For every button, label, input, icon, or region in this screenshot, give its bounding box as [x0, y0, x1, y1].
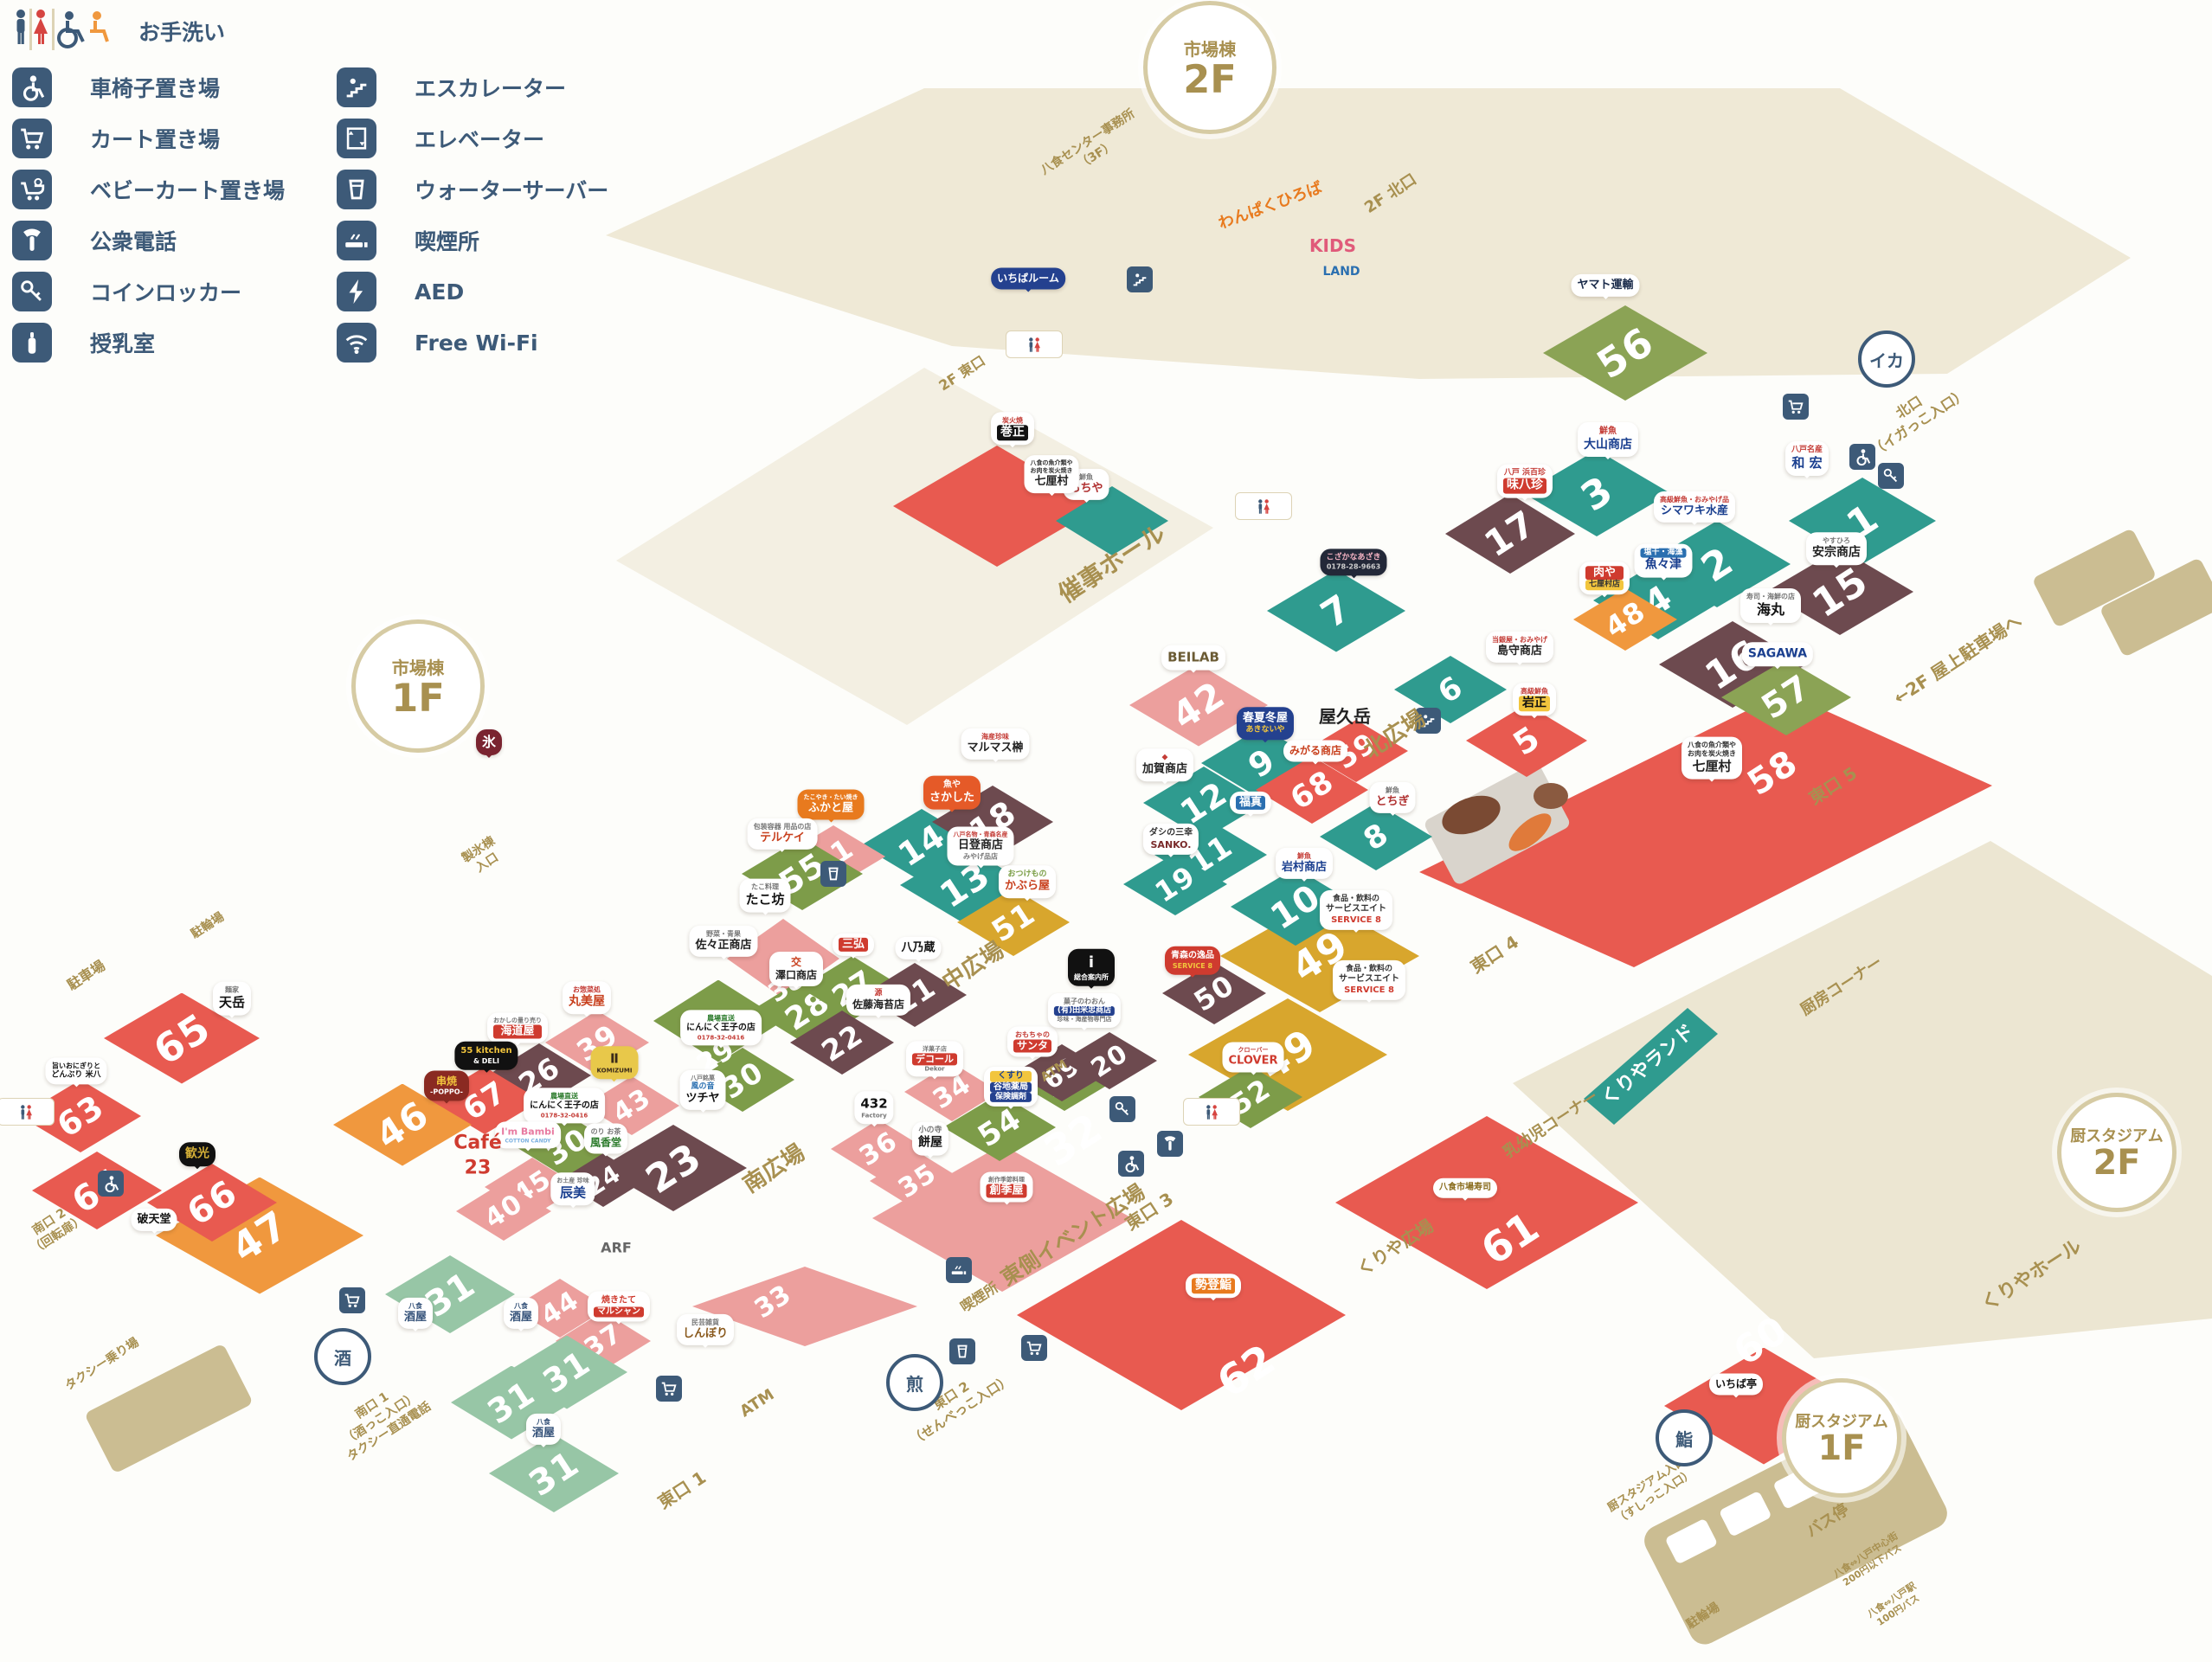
stall-badge-49: 食品・飲料のサービスエイトSERVICE 8 — [1320, 890, 1392, 930]
badge-text: 八戸名産 — [1791, 446, 1823, 455]
badge-text: 春夏冬屋 — [1243, 711, 1288, 725]
badge-text: 包装容器 用品の店 — [754, 823, 812, 831]
badge-text: 総合案内所 — [1074, 972, 1109, 981]
badge-text: 源 — [852, 989, 904, 998]
nursing-icon — [12, 323, 52, 363]
badge-text: Factory — [860, 1112, 887, 1120]
badge-text: 酒屋 — [532, 1427, 555, 1441]
stall-badge-10: 鮮魚岩村商店 — [1276, 848, 1333, 879]
badge-text: 八食の魚介類や — [1031, 459, 1073, 467]
badge-text: 歓光 — [185, 1146, 209, 1162]
badge-text: 小の寺 — [918, 1126, 942, 1136]
badge-text: ダシの三幸 — [1149, 828, 1193, 839]
water-icon — [949, 1338, 975, 1364]
badge-text: 0178-28-9663 — [1326, 563, 1380, 572]
badge-text: お惣菜処 — [569, 985, 605, 994]
area-label: 南広場 — [738, 1139, 811, 1201]
badge-text: 八食 — [404, 1302, 427, 1311]
area-label: 2F 北口 — [1360, 170, 1420, 218]
cart-icon — [12, 119, 52, 158]
wifi-icon — [337, 323, 376, 363]
legend-panel: お手洗い 車椅子置き場カート置き場ベビーカート置き場公衆電話コインロッカー授乳室… — [12, 7, 670, 374]
area-label: 2F 東口 — [936, 352, 988, 395]
badge-text: 福真 — [1236, 796, 1265, 810]
free-badge-2: 福真 — [1230, 792, 1271, 814]
wc-icon — [1006, 330, 1063, 358]
area-label: 駐輪場 — [188, 909, 227, 942]
area-label: LAND — [1322, 264, 1360, 279]
area-label: 南口 1 （酒っこ入口） タクシー直通電話 — [327, 1373, 434, 1466]
stall-badge-64: 破天堂 — [131, 1209, 177, 1231]
badge-text: サービスエイト — [1339, 974, 1399, 985]
stall-badge-34: 洋菓子店デコールDekor — [906, 1041, 963, 1076]
badge-text: あきないや — [1243, 726, 1288, 735]
badge-text: 佐々正商店 — [695, 939, 751, 953]
badge-text: 辰美 — [556, 1184, 588, 1201]
stall-tile-7: 7 — [1267, 570, 1405, 652]
floor-circle-1F: 厨スタジアム1F — [1782, 1378, 1901, 1498]
free-badge-4: いちばルーム — [991, 268, 1065, 290]
badge-text: 日登商店 — [954, 838, 1008, 852]
stall-badge-45: I'm BambiCOTTON CANDY — [495, 1121, 561, 1148]
area-label: 乳幼児コーナー — [1500, 1087, 1602, 1163]
legend-item-phone: 公衆電話 — [12, 221, 285, 260]
legend-label: 喫煙所 — [415, 225, 479, 256]
badge-text: 塩干・海藻 — [1640, 549, 1686, 558]
badge-text: 海道屋 — [493, 1024, 542, 1038]
badge-text: 菓子のわおん — [1054, 998, 1115, 1006]
badge-text: さかした — [929, 791, 974, 805]
legend-label: コインロッカー — [90, 276, 241, 307]
stall-badge-31: 八食酒屋 — [398, 1298, 433, 1329]
legend-item-escalator: エスカレーター — [337, 67, 608, 107]
badge-text: 風香堂 — [590, 1137, 621, 1150]
badge-text: いちば亭 — [1715, 1378, 1757, 1391]
cart-icon — [339, 1287, 365, 1313]
water-icon — [337, 170, 376, 209]
stall-badge-31: 八食酒屋 — [526, 1414, 561, 1445]
badge-text: 佐藤海苔店 — [852, 998, 904, 1011]
badge-text: 創作季節料理 — [986, 1177, 1026, 1184]
badge-text: 55 kitchen — [460, 1046, 511, 1057]
legend-item-cart: カート置き場 — [12, 119, 285, 158]
badge-text: 創季屋 — [986, 1184, 1026, 1197]
area-label: 駐車場 — [64, 957, 109, 995]
legend-label: Free Wi-Fi — [415, 330, 538, 356]
badge-text: 保険調剤 — [990, 1093, 1032, 1102]
legend-restroom-row: お手洗い — [12, 7, 670, 55]
key-icon — [1878, 463, 1904, 489]
stall-badge-17: 八戸 浜百珍味八珍 — [1497, 465, 1553, 498]
key-icon — [12, 272, 52, 311]
stall-badge-51: おつけものかぶら屋 — [999, 865, 1056, 898]
stall-badge-9: 春夏冬屋あきないや — [1237, 707, 1294, 740]
badge-text: 魚や — [929, 780, 974, 792]
area-label: ←2F 屋上駐車場へ — [1889, 609, 2026, 709]
legend-label: ウォーターサーバー — [415, 174, 608, 205]
legend-item-smoke: 喫煙所 — [337, 221, 608, 260]
smoke-icon — [946, 1257, 972, 1283]
badge-text: みがる商店 — [1289, 745, 1341, 758]
badge-text: おもちゃの — [1013, 1031, 1051, 1040]
stall-badge-3: 鮮魚大山商店 — [1578, 422, 1638, 457]
badge-text: クローバー — [1228, 1047, 1277, 1055]
badge-text: SERVICE 8 — [1339, 985, 1399, 997]
stall-badge-49: 食品・飲料のサービスエイトSERVICE 8 — [1333, 960, 1405, 1000]
stall-badge-57: SAGAWA — [1742, 642, 1813, 666]
badge-text: 旨いおにぎりと — [51, 1062, 100, 1070]
badge-text: Ⅱ — [597, 1050, 633, 1067]
stall-badge-1: 八戸名産和 宏 — [1785, 441, 1829, 476]
badge-text: 炭火焼 — [997, 416, 1028, 425]
badge-text: 民芸雑貨 — [683, 1319, 728, 1327]
free-badge-5: 氷 — [476, 729, 502, 755]
deco-ellipse — [1534, 783, 1568, 809]
badge-text: 洋菓子店 — [912, 1045, 957, 1053]
floor-circle-text: 2F — [1183, 61, 1237, 99]
area-label: 喫煙所 — [957, 1279, 1002, 1317]
area-label: ATM — [736, 1385, 779, 1422]
wheelchair-icon — [1118, 1151, 1144, 1177]
floor-circle-2F: 市場棟2F — [1143, 1, 1276, 134]
cart-icon — [1783, 394, 1809, 420]
area-label: 八食⇔八戸駅 100円バス — [1865, 1581, 1925, 1632]
badge-text: シマワキ水産 — [1660, 504, 1729, 518]
legend-label: エスカレーター — [415, 72, 566, 103]
stall-badge-65: 麺家天岳 — [213, 982, 251, 1016]
badge-text: COTTON CANDY — [501, 1138, 555, 1145]
badge-text: Dekor — [912, 1065, 957, 1073]
badge-text: 八食の魚介類や — [1688, 741, 1736, 750]
stall-badge-32: 創作季節料理創季屋 — [980, 1172, 1032, 1203]
stall-badge-4: 塩干・海藻魚々津 — [1634, 544, 1692, 578]
badge-text: いちばルーム — [997, 273, 1059, 286]
stall-badge-43: ⅡKOMIZUMI — [591, 1046, 639, 1079]
badge-text: 八戸銘菓 — [685, 1075, 719, 1082]
badge-text: サービスエイト — [1326, 904, 1386, 915]
stall-badge-46: 串焼-POPPO- — [424, 1071, 469, 1101]
badge-text: KOMIZUMI — [597, 1067, 633, 1075]
key-icon — [1109, 1096, 1135, 1122]
badge-text: 味八珍 — [1503, 478, 1546, 494]
badge-text: 高級鮮魚 — [1519, 687, 1550, 696]
badge-text: 0178-32-0416 — [530, 1112, 599, 1120]
badge-text: たこ料理 — [745, 883, 784, 892]
badge-text: 珍味・海産物専門店 — [1054, 1016, 1115, 1024]
badge-text: 大山商店 — [1584, 438, 1632, 453]
badge-text: こざかなあざき — [1326, 553, 1380, 562]
badge-text: 七厘村 — [1688, 759, 1736, 775]
badge-text: 岩村商店 — [1282, 861, 1327, 875]
badge-text: マルシャン — [594, 1306, 644, 1318]
badge-text: 八食 — [532, 1418, 555, 1427]
badge-text: 高級鮮魚・おみやげ品 — [1660, 496, 1729, 504]
area-label: タクシー乗り場 — [62, 1335, 142, 1395]
stall-badge-31: 八食酒屋 — [504, 1298, 538, 1329]
badge-text: BEILAB — [1167, 650, 1219, 666]
badge-text: ◆ — [1142, 753, 1187, 762]
badge-text: みやげ品店 — [954, 853, 1008, 862]
stall-badge-13: 八戸名物・青森名産日登商店みやげ品店 — [948, 827, 1014, 866]
stall-badge-62: 勢登鮨 — [1186, 1274, 1241, 1298]
free-badge-1: 八食の魚介類やお肉を炭火焼き七厘村 — [1025, 455, 1079, 493]
badge-text: 農場直送 — [686, 1014, 756, 1023]
area-label: Café 23 — [453, 1131, 501, 1180]
legend-label: 車椅子置き場 — [90, 72, 220, 103]
badge-text: お肉を炭火焼き — [1688, 750, 1736, 759]
stall-badge-12: ◆加賀商店 — [1136, 748, 1193, 781]
stall-badge-48: 肉や七厘村店 — [1579, 561, 1630, 594]
area-label: 厨房コーナー — [1797, 953, 1886, 1020]
stall-badge-6: 当銀屋・おみやげ島守商店 — [1486, 632, 1553, 663]
wc-icon — [1183, 1098, 1240, 1126]
badge-text: 七厘村店 — [1585, 581, 1624, 590]
legend-item-wifi: Free Wi-Fi — [337, 323, 608, 363]
floor-circle-text: 1F — [1818, 1432, 1866, 1466]
badge-text: たこ坊 — [745, 892, 784, 908]
badge-text: 酒屋 — [404, 1311, 427, 1325]
badge-text: 交 — [775, 956, 817, 969]
badge-text: しんぼり — [683, 1327, 728, 1341]
badge-text: 丸美屋 — [569, 994, 605, 1010]
badge-text: お土産 珍味 — [556, 1177, 588, 1184]
badge-text: i — [1074, 953, 1109, 973]
stall-badge-22: 源佐藤海苔店 — [846, 985, 910, 1016]
area-label: 東口 4 — [1466, 931, 1522, 979]
badge-text: 鮮魚 — [1375, 786, 1409, 795]
badge-text: SERVICE 8 — [1171, 961, 1214, 970]
legend-item-water: ウォーターサーバー — [337, 170, 608, 209]
floor-circle-text: 2F — [2093, 1146, 2141, 1181]
badge-text: & DELI — [460, 1056, 511, 1065]
area-label: 八食センター事務所 （3F） — [1038, 106, 1146, 191]
badge-text: 農場直送 — [530, 1092, 599, 1101]
area-label: ARF — [601, 1240, 632, 1258]
area-label: くりやホール — [1977, 1235, 2087, 1318]
badge-text: デコール — [912, 1053, 957, 1065]
stall-badge-18: 海産珍味マルマス榊 — [961, 728, 1029, 760]
cart-icon — [656, 1376, 682, 1402]
stall-badge-66: 歓光 — [179, 1142, 215, 1166]
restroom-figures-icon — [12, 7, 116, 55]
stall-number-32: 32 — [1036, 1104, 1111, 1176]
stall-number: 31 — [375, 1226, 526, 1362]
badge-text: -POPPO- — [430, 1088, 463, 1097]
badge-text: 八戸名物・青森名産 — [954, 831, 1008, 839]
smoke-icon — [337, 221, 376, 260]
badge-text: 安宗商店 — [1812, 545, 1861, 561]
badge-text: 谷地薬局 — [990, 1081, 1032, 1093]
badge-text: 肉や — [1585, 566, 1624, 580]
stall-tile-31: 31 — [489, 1434, 619, 1512]
badge-text: SANKO. — [1149, 838, 1193, 850]
legend-label: ベビーカート置き場 — [90, 174, 285, 205]
stall-tile-56: 56 — [1543, 305, 1707, 401]
stall-badge-8: 鮮魚とちぎ — [1369, 782, 1415, 813]
area-label: 東口 1 — [653, 1466, 710, 1514]
legend-item-wheelchair: 車椅子置き場 — [12, 67, 285, 107]
legend-label: 授乳室 — [90, 327, 155, 358]
wheelchair-icon — [98, 1171, 124, 1197]
water-icon — [820, 861, 846, 887]
area-label: KIDS — [1309, 234, 1356, 257]
badge-text: くすり — [990, 1071, 1032, 1082]
badge-text: 島守商店 — [1492, 645, 1547, 658]
badge-text: にんにく王子の店 — [686, 1023, 756, 1034]
floor-circle-text: 1F — [391, 679, 445, 718]
badge-text: マルマス榊 — [967, 741, 1023, 755]
stall-badge-19: ダシの三幸SANKO. — [1143, 824, 1199, 855]
wheelchair-icon — [12, 67, 52, 107]
stall-badge-56: ヤマト運輸 — [1571, 274, 1639, 297]
stall-badge-61: 八食市場寿司 — [1433, 1178, 1497, 1198]
stall-badge-55: 包装容器 用品の店テルケイ — [748, 818, 818, 850]
stall-badge-2: 高級鮮魚・おみやげ品シマワキ水産 — [1654, 491, 1735, 523]
stall-badge-58: 八食の魚介類やお肉を炭火焼き七厘村 — [1682, 737, 1742, 780]
legend-label: カート置き場 — [90, 123, 220, 154]
wc-icon — [0, 1098, 55, 1126]
badge-text: SAGAWA — [1748, 646, 1807, 662]
badge-text: ヤマト運輸 — [1577, 279, 1633, 292]
elevator-icon — [337, 119, 376, 158]
stall-badge-20: 菓子のわおん(有)田米忠商店珍味・海産物専門店 — [1048, 993, 1121, 1028]
free-badge-3: のり お茶風香堂 — [584, 1124, 627, 1154]
badge-text: 麺家 — [219, 986, 245, 995]
badge-text: 七厘村 — [1031, 475, 1073, 489]
badge-text: にんにく王子の店 — [530, 1101, 599, 1112]
badge-text: 餅屋 — [918, 1136, 942, 1152]
badge-text: 串焼 — [430, 1075, 463, 1088]
badge-text: CLOVER — [1228, 1054, 1277, 1068]
babycart-icon — [12, 170, 52, 209]
badge-text: 澤口商店 — [775, 969, 817, 982]
area-label: わんぱくひろば — [1216, 177, 1325, 234]
stall-badge-29: 野菜・青果佐々正商店 — [689, 926, 757, 957]
aed-icon — [337, 272, 376, 311]
floor-circle-1F: 市場棟1F — [351, 619, 485, 753]
badge-text: かぶら屋 — [1005, 880, 1050, 894]
badge-text: ふかと屋 — [804, 801, 858, 815]
badge-text: 加賀商店 — [1142, 763, 1187, 777]
stall-badge-27: 三弘 — [833, 934, 874, 956]
stall-badge-30: 農場直送にんにく王子の店0178-32-0416 — [680, 1010, 762, 1045]
badge-text: 氷 — [482, 734, 496, 751]
area-label: くりやランド — [1597, 1020, 1701, 1113]
legend-item-elevator: エレベーター — [337, 119, 608, 158]
badge-text: 0178-32-0416 — [686, 1034, 756, 1042]
legend-label: 公衆電話 — [90, 225, 177, 256]
badge-text: 鮮魚 — [1282, 852, 1327, 861]
badge-text: とちぎ — [1375, 795, 1409, 809]
badge-text: 青森の逸品 — [1171, 951, 1214, 962]
stall-badge-30: 農場直送にんにく王子の店0178-32-0416 — [524, 1088, 605, 1123]
stall-badge-26: おかしの量り売り海道屋 — [487, 1013, 548, 1043]
legend-item-key: コインロッカー — [12, 272, 285, 311]
stall-badge-38: たこ料理たこ坊 — [739, 879, 790, 913]
stall-badge-36: 432Factory — [854, 1091, 893, 1124]
stall-badge-16: 寿司・海鮮の店海丸 — [1740, 588, 1801, 623]
badge-text: 432 — [860, 1095, 887, 1112]
badge-text: SERVICE 8 — [1326, 915, 1386, 927]
legend-item-nursing: 授乳室 — [12, 323, 285, 363]
stall-badge-37: 焼きたてマルシャン — [588, 1292, 650, 1322]
badge-text: 和 宏 — [1791, 455, 1823, 472]
badge-text: 魚々津 — [1640, 558, 1686, 574]
legend-column-right: エスカレーターエレベーターウォーターサーバー喫煙所AEDFree Wi-Fi — [337, 67, 608, 374]
badge-text: 寿司・海鮮の店 — [1746, 593, 1795, 601]
stall-badge-24: お土産 珍味辰美 — [550, 1172, 595, 1205]
badge-text: サンタ — [1013, 1040, 1051, 1053]
stall-badge-15: やすひろ安宗商店 — [1806, 532, 1867, 565]
stall-badge-50: 青森の逸品SERVICE 8 — [1165, 947, 1220, 975]
badge-text: I'm Bambi — [501, 1126, 555, 1138]
badge-text: 八乃蔵 — [901, 941, 935, 955]
senbei-icon: 煎 — [886, 1354, 943, 1411]
stall-badge-41: たこやき・たい焼きふかと屋 — [798, 790, 865, 820]
stall-badge-23: 八戸銘菓風の音ツチヤ — [679, 1070, 725, 1110]
area-label: 製氷棟 入口 — [459, 833, 506, 879]
stall-badge-52: クローバーCLOVER — [1222, 1043, 1283, 1073]
badge-text: ツチヤ — [685, 1092, 719, 1106]
stall-badge-53: おもちゃのサンタ — [1007, 1027, 1058, 1057]
badge-text: テルケイ — [754, 831, 812, 845]
restroom-label: お手洗い — [138, 16, 225, 47]
bus-window — [1719, 1491, 1772, 1537]
badge-text: 八戸 浜百珍 — [1503, 469, 1546, 478]
cart-icon — [1021, 1335, 1047, 1361]
badge-text: 海産珍味 — [967, 733, 1023, 741]
badge-text: 食品・飲料の — [1326, 895, 1386, 904]
badge-text: おかしの量り売り — [493, 1017, 542, 1025]
badge-text: 天岳 — [219, 995, 245, 1011]
stall-badge-69: i総合案内所 — [1068, 949, 1115, 986]
wc-icon — [1235, 492, 1292, 520]
badge-text: 勢登鮨 — [1192, 1278, 1235, 1293]
escalator-icon — [337, 67, 376, 107]
bus-window — [1664, 1518, 1718, 1565]
sushi-icon: 鮨 — [1656, 1409, 1713, 1466]
badge-text: 海丸 — [1746, 601, 1795, 619]
badge-text: (有)田米忠商店 — [1054, 1006, 1115, 1016]
badge-text: 野菜・青果 — [695, 930, 751, 939]
badge-text: たこやき・たい焼き — [804, 794, 858, 802]
badge-text: 三弘 — [839, 938, 868, 952]
legend-label: エレベーター — [415, 123, 544, 154]
area-label: 屋久岳 — [1319, 705, 1371, 728]
badge-text: どんぶり 米八 — [51, 1070, 100, 1080]
phone-icon — [1157, 1131, 1183, 1157]
sake-icon: 酒 — [314, 1328, 371, 1385]
stall-badge-7: こざかなあざき0178-28-9663 — [1320, 549, 1386, 575]
badge-text: やすひろ — [1812, 536, 1861, 545]
badge-text: 食品・飲料の — [1339, 965, 1399, 974]
badge-text: お肉を炭火焼き — [1031, 467, 1073, 475]
stall-tile-8: 8 — [1320, 803, 1432, 870]
floor-circle-2F: 厨スタジアム2F — [2057, 1093, 2177, 1212]
legend-label: AED — [415, 279, 464, 305]
squid-icon: イカ — [1858, 330, 1915, 388]
badge-text: 巻正 — [997, 425, 1028, 440]
stall-badge-54: くすり谷地薬局保険調剤 — [984, 1067, 1038, 1107]
stall-badge-35: 小の寺餅屋 — [912, 1122, 948, 1156]
badge-text: 鮮魚 — [1584, 427, 1632, 438]
legend-item-aed: AED — [337, 272, 608, 311]
stall-badge-60: いちば亭 — [1709, 1374, 1763, 1396]
stall-badge-42: BEILAB — [1161, 645, 1225, 671]
stall-badge-67: 55 kitchen& DELI — [454, 1042, 518, 1070]
escalator-icon — [1127, 266, 1153, 292]
badge-text: 八食 — [510, 1302, 532, 1311]
